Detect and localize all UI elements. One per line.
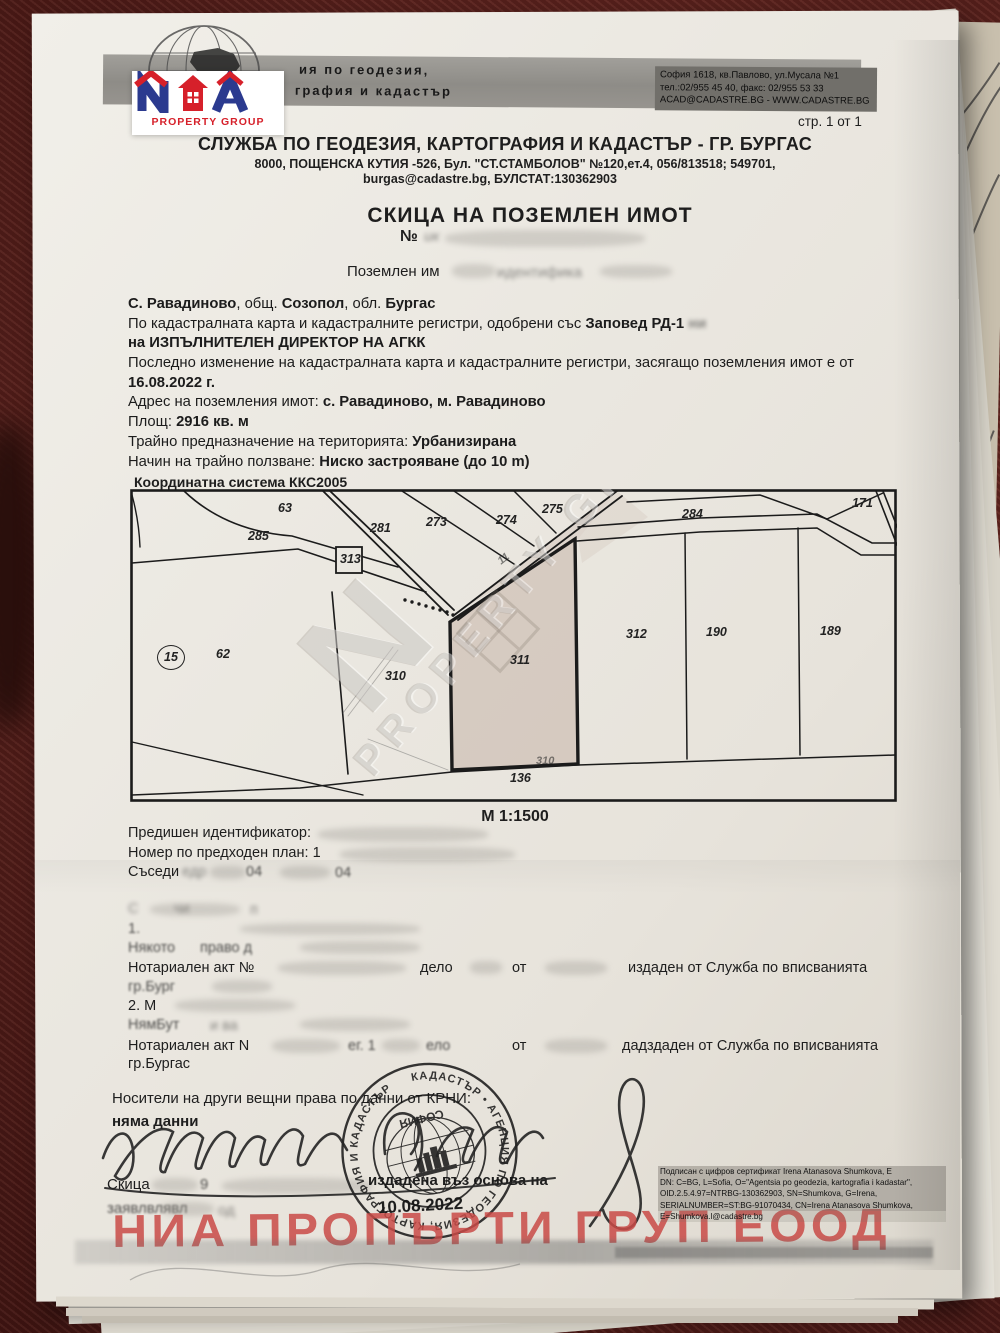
property-line-3: на ИЗПЪЛНИТЕЛЕН ДИРЕКТОР НА АГКК xyxy=(128,335,854,355)
banner-address-line-1: София 1618, кв.Павлово, ул.Мусала №1 xyxy=(660,69,872,83)
property-line-6: Адрес на поземления имот: с. Равадиново,… xyxy=(128,394,854,414)
redaction-smudge xyxy=(452,264,496,278)
neighbours-blur: едр xyxy=(182,864,206,880)
owners-fragment-13: НямБут xyxy=(128,1017,179,1033)
parcel-label-15: 15 xyxy=(157,645,185,670)
redaction-smudge xyxy=(240,923,420,935)
owners-fragment-12: 2. М xyxy=(128,998,156,1014)
certificate-line-4: SERIALNUMBER=ST:BG-91070434, CN=Irena At… xyxy=(658,1200,946,1211)
redaction-smudge xyxy=(175,999,295,1012)
parcel-label-285: 285 xyxy=(248,529,269,543)
parcel-label-310: 310 xyxy=(385,669,406,683)
owners-fragment-3: п xyxy=(250,902,258,918)
redaction-smudge xyxy=(280,866,330,879)
digital-signature-certificate: Подписан с цифров сертификат Irena Atana… xyxy=(658,1166,946,1222)
office-title: СЛУЖБА ПО ГЕОДЕЗИЯ, КАРТОГРАФИЯ И КАДАСТ… xyxy=(120,134,890,155)
redaction-smudge xyxy=(545,961,607,975)
office-email-line: burgas@cadastre.bg, БУЛСТАТ:130362903 xyxy=(115,172,865,186)
redaction-smudge xyxy=(600,265,672,278)
certificate-line-2: DN: C=BG, L=Sofia, O="Agentsia po geodez… xyxy=(658,1177,946,1188)
office-address: 8000, ПОЩЕНСКА КУТИЯ -526, Бул. "СТ.СТАМ… xyxy=(140,157,890,171)
redaction-smudge xyxy=(445,230,645,247)
parcel-label-11: 11 xyxy=(496,551,512,567)
neighbour-fragment-1: 04 xyxy=(246,864,262,880)
property-line-9: Начин на трайно ползване: Ниско застрояв… xyxy=(128,454,854,474)
redaction-smudge xyxy=(470,961,502,974)
document-number-prefix: № xyxy=(400,228,418,246)
redaction-smudge xyxy=(300,941,420,954)
property-line-1: С. Равадиново, общ. Созопол, обл. Бургас xyxy=(128,296,854,316)
owners-fragment-7: Нотариален акт № xyxy=(128,960,254,976)
parcel-label-310: 310 xyxy=(536,755,554,767)
redaction-smudge xyxy=(212,980,272,993)
redaction-smudge xyxy=(340,847,515,862)
owners-fragment-18: от xyxy=(512,1038,526,1054)
banner-left-line-2: графия и кадастър xyxy=(295,83,452,99)
page-indicator: стр. 1 от 1 xyxy=(798,114,862,129)
owners-fragment-19: дадздаден от Служба по вписванията xyxy=(622,1038,878,1054)
parcel-label-136: 136 xyxy=(510,771,531,785)
redaction-smudge xyxy=(278,961,406,975)
owners-fragment-10: издаден от Служба по вписванията xyxy=(628,960,867,976)
owners-fragment-16: ег. 1 xyxy=(348,1038,376,1054)
previous-plan-label: Номер по предходен план: 1 xyxy=(128,845,321,861)
parcel-label-311: 311 xyxy=(510,653,530,667)
parcel-label-274: 274 xyxy=(496,513,517,527)
banner-address-line-3: ACAD@CADASTRE.BG - WWW.CADASTRE.BG xyxy=(660,94,872,108)
neighbours-label: Съседи xyxy=(128,864,179,880)
owners-fragment-9: от xyxy=(512,960,526,976)
redaction-smudge xyxy=(210,866,246,879)
coordinate-system-label: Координатна система ККС2005 xyxy=(134,474,347,490)
property-description: С. Равадиново, общ. Созопол, обл. Бургас… xyxy=(128,296,854,473)
owners-fragment-14: и ва xyxy=(210,1018,238,1034)
certificate-line-3: OID.2.5.4.97=NTRBG-130362903, SN=Shumkov… xyxy=(658,1188,946,1199)
redaction-smudge xyxy=(382,1039,420,1052)
document-title: СКИЦА НА ПОЗЕМЛЕН ИМОТ xyxy=(230,204,830,228)
bottom-sheet-edge-2 xyxy=(66,1308,918,1316)
document-number-fragment: ик xyxy=(424,228,439,245)
parcel-labels: 6328528127327427528417131315623103113121… xyxy=(130,489,897,802)
property-line-2: По кадастралната карта и кадастралните р… xyxy=(128,316,854,336)
parcel-label-281: 281 xyxy=(370,521,391,535)
property-line-5: 16.08.2022 г. xyxy=(128,375,854,395)
parcel-label-189: 189 xyxy=(820,624,841,638)
map-scale: М 1:1500 xyxy=(430,808,600,826)
redaction-smudge xyxy=(272,1039,340,1053)
previous-identifier-label: Предишен идентификатор: xyxy=(128,825,311,841)
owners-fragment-11: гр.Бург xyxy=(128,979,175,995)
owners-fragment-15: Нотариален акт N xyxy=(128,1038,249,1054)
banner-left-line-1: ия по геодезия, xyxy=(299,62,429,78)
banner-address-block: София 1618, кв.Павлово, ул.Мусала №1 тел… xyxy=(655,66,877,111)
cadastral-map: N PROPERTY GROUP xyxy=(130,489,897,802)
redaction-smudge xyxy=(318,827,488,842)
redaction-smudge xyxy=(150,903,240,916)
nia-logo-subtitle: PROPERTY GROUP xyxy=(132,116,284,128)
neighbour-fragment-2: 04 xyxy=(335,865,351,881)
parcel-label-313: 313 xyxy=(340,552,361,566)
parcel-label-273: 273 xyxy=(426,515,447,529)
nia-logo-glyph xyxy=(134,71,282,113)
redaction-smudge xyxy=(300,1018,410,1031)
redaction-smudge xyxy=(545,1039,607,1053)
subtitle-prefix: Поземлен им xyxy=(347,263,440,280)
parcel-label-171: 171 xyxy=(852,496,873,510)
parcel-label-62: 62 xyxy=(216,647,230,661)
parcel-label-312: 312 xyxy=(626,627,647,641)
certificate-line-1: Подписан с цифров сертификат Irena Atana… xyxy=(658,1166,946,1177)
owners-fragment-4: 1. xyxy=(128,921,140,937)
owners-fragment-8: дело xyxy=(420,960,453,976)
subtitle-blurred: идентифика xyxy=(497,264,582,281)
owners-fragment-5: Някото xyxy=(128,940,175,956)
parcel-label-63: 63 xyxy=(278,501,292,515)
owners-fragment-6: право д xyxy=(200,940,252,956)
bottom-sheet-edge-3 xyxy=(82,1316,898,1323)
parcel-label-275: 275 xyxy=(542,502,563,516)
photo-of-cadastral-sketch: ия по геодезия, графия и кадастър София … xyxy=(0,0,1000,1333)
certificate-line-5: E=Shumkova.l@cadastre.bg xyxy=(658,1211,946,1222)
owners-fragment-1: С xyxy=(128,901,138,917)
property-line-4: Последно изменение на кадастралната карт… xyxy=(128,355,854,375)
property-line-7: Площ: 2916 кв. м xyxy=(128,414,854,434)
nia-property-group-logo: PROPERTY GROUP xyxy=(132,71,284,135)
property-line-8: Трайно предназначение на територията: Ур… xyxy=(128,434,854,454)
parcel-label-284: 284 xyxy=(682,507,703,521)
parcel-label-190: 190 xyxy=(706,625,727,639)
